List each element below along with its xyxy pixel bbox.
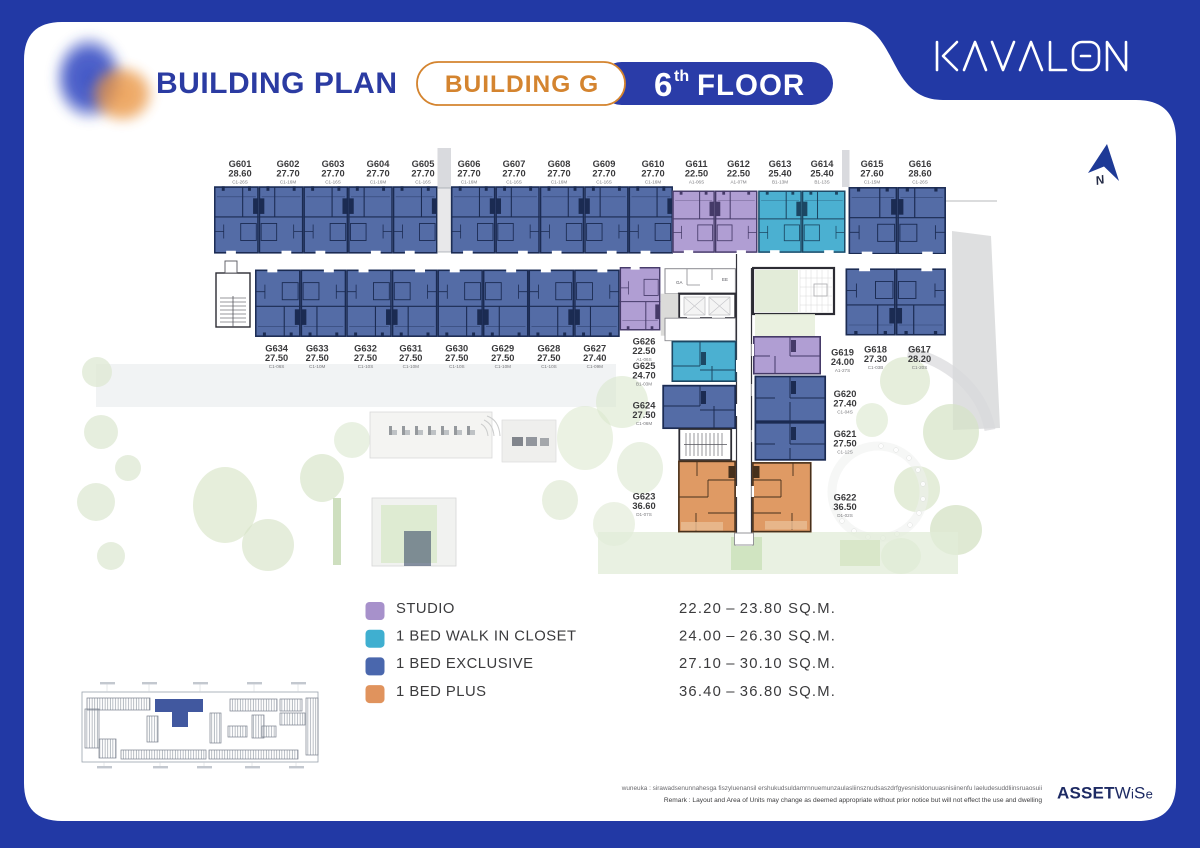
svg-text:1 BED PLUS: 1 BED PLUS [396, 684, 487, 700]
svg-text:27.70: 27.70 [457, 169, 480, 179]
svg-text:G617: G617 [908, 345, 931, 355]
svg-text:25.40: 25.40 [810, 169, 833, 179]
svg-text:C1-16S: C1-16S [506, 179, 522, 184]
svg-text:C1-03B: C1-03B [868, 365, 884, 370]
svg-text:ASSETWiSe: ASSETWiSe [1057, 784, 1153, 803]
svg-text:BUILDING G: BUILDING G [445, 71, 599, 98]
svg-text:22.50: 22.50 [685, 169, 708, 179]
svg-text:36.40 – 36.80 SQ.M.: 36.40 – 36.80 SQ.M. [679, 684, 836, 700]
svg-text:C1-10M: C1-10M [403, 364, 420, 369]
svg-text:C1-16S: C1-16S [325, 179, 341, 184]
svg-text:C1-10M: C1-10M [309, 364, 326, 369]
svg-text:27.70: 27.70 [276, 169, 299, 179]
svg-text:G609: G609 [593, 159, 616, 169]
svg-text:C1-10S: C1-10S [449, 364, 465, 369]
svg-text:28.60: 28.60 [908, 169, 931, 179]
svg-text:24.70: 24.70 [632, 371, 655, 381]
svg-text:C1-10S: C1-10S [358, 364, 374, 369]
svg-text:27.70: 27.70 [641, 169, 664, 179]
svg-text:G604: G604 [367, 159, 391, 169]
svg-text:27.50: 27.50 [491, 353, 514, 363]
svg-text:22.50: 22.50 [632, 346, 655, 356]
svg-text:24.00: 24.00 [831, 357, 854, 367]
svg-text:C1-16S: C1-16S [415, 179, 431, 184]
svg-text:G603: G603 [322, 159, 345, 169]
svg-text:27.40: 27.40 [833, 399, 856, 409]
svg-text:27.50: 27.50 [537, 353, 560, 363]
svg-text:C1-16M: C1-16M [551, 179, 568, 184]
svg-text:27.50: 27.50 [306, 353, 329, 363]
svg-text:G616: G616 [909, 159, 932, 169]
svg-text:D1-02S: D1-02S [837, 513, 853, 518]
svg-text:C1-12S: C1-12S [837, 449, 853, 454]
svg-text:1 BED EXCLUSIVE: 1 BED EXCLUSIVE [396, 656, 533, 672]
svg-text:36.60: 36.60 [632, 501, 655, 511]
svg-text:C1-15M: C1-15M [864, 179, 881, 184]
svg-text:G628: G628 [538, 344, 561, 354]
svg-text:G612: G612 [727, 159, 750, 169]
svg-text:C1-26S: C1-26S [912, 179, 928, 184]
svg-text:27.50: 27.50 [632, 410, 655, 420]
svg-text:G625: G625 [633, 361, 656, 371]
svg-text:1 BED WALK IN CLOSET: 1 BED WALK IN CLOSET [396, 629, 576, 645]
svg-text:G605: G605 [412, 159, 435, 169]
svg-text:G622: G622 [834, 493, 857, 503]
svg-text:G623: G623 [633, 492, 656, 502]
svg-text:C1-26S: C1-26S [232, 179, 248, 184]
svg-text:G615: G615 [861, 159, 884, 169]
svg-text:C1-04S: C1-04S [837, 409, 853, 414]
svg-text:B1-13S: B1-13S [814, 179, 829, 184]
svg-text:G613: G613 [769, 159, 792, 169]
svg-text:C1-16M: C1-16M [280, 179, 297, 184]
svg-text:27.50: 27.50 [833, 439, 856, 449]
svg-text:27.50: 27.50 [265, 353, 288, 363]
svg-text:G630: G630 [445, 344, 468, 354]
svg-text:B1-03M: B1-03M [636, 381, 652, 386]
svg-text:G606: G606 [458, 159, 481, 169]
svg-text:6: 6 [654, 66, 672, 103]
svg-text:27.50: 27.50 [399, 353, 422, 363]
svg-text:G627: G627 [583, 344, 606, 354]
svg-text:C1-10S: C1-10S [541, 364, 557, 369]
svg-text:27.70: 27.70 [502, 169, 525, 179]
svg-text:G611: G611 [685, 159, 707, 169]
svg-text:C1-06S: C1-06S [269, 364, 285, 369]
svg-text:G610: G610 [642, 159, 665, 169]
svg-text:GA: GA [676, 280, 683, 285]
svg-text:G618: G618 [864, 345, 887, 355]
svg-text:G631: G631 [399, 344, 422, 354]
svg-text:28.60: 28.60 [228, 169, 251, 179]
svg-text:Remark : Layout and Area of Un: Remark : Layout and Area of Units may ch… [664, 797, 1042, 804]
svg-text:EE: EE [722, 277, 728, 282]
svg-text:G634: G634 [265, 344, 289, 354]
svg-text:G607: G607 [503, 159, 526, 169]
svg-text:B1-13M: B1-13M [772, 179, 788, 184]
svg-text:C1-10M: C1-10M [495, 364, 512, 369]
svg-text:th: th [674, 68, 689, 85]
svg-text:27.50: 27.50 [354, 353, 377, 363]
svg-text:27.70: 27.70 [366, 169, 389, 179]
svg-text:27.10 – 30.10 SQ.M.: 27.10 – 30.10 SQ.M. [679, 656, 836, 672]
svg-text:C1-20S: C1-20S [912, 365, 928, 370]
svg-text:24.00 – 26.30 SQ.M.: 24.00 – 26.30 SQ.M. [679, 629, 836, 645]
svg-text:27.30: 27.30 [864, 354, 887, 364]
svg-text:G632: G632 [354, 344, 377, 354]
svg-text:27.50: 27.50 [445, 353, 468, 363]
svg-text:22.50: 22.50 [727, 169, 750, 179]
svg-text:A1-06S: A1-06S [689, 179, 704, 184]
svg-text:STUDIO: STUDIO [396, 601, 455, 617]
svg-text:27.70: 27.70 [411, 169, 434, 179]
svg-text:27.40: 27.40 [583, 353, 606, 363]
svg-text:G624: G624 [633, 401, 657, 411]
svg-text:27.60: 27.60 [860, 169, 883, 179]
svg-text:27.70: 27.70 [321, 169, 344, 179]
svg-text:25.40: 25.40 [768, 169, 791, 179]
svg-text:D1-07S: D1-07S [636, 512, 652, 517]
svg-text:G621: G621 [834, 429, 857, 439]
svg-text:A1-27S: A1-27S [835, 368, 850, 373]
svg-text:36.50: 36.50 [833, 502, 856, 512]
svg-text:BUILDING PLAN: BUILDING PLAN [156, 67, 398, 100]
svg-text:wuneuka : sirawadsenunnahesga: wuneuka : sirawadsenunnahesga fiszyluena… [621, 785, 1042, 792]
svg-text:A1-07M: A1-07M [730, 179, 746, 184]
svg-text:C1-09M: C1-09M [587, 364, 604, 369]
svg-text:C1-16M: C1-16M [461, 179, 478, 184]
svg-text:FLOOR: FLOOR [697, 69, 805, 102]
svg-text:28.20: 28.20 [908, 354, 931, 364]
svg-text:G620: G620 [834, 389, 857, 399]
svg-text:G602: G602 [277, 159, 300, 169]
svg-text:22.20 – 23.80 SQ.M.: 22.20 – 23.80 SQ.M. [679, 601, 836, 617]
svg-text:C1-16M: C1-16M [370, 179, 387, 184]
svg-text:G614: G614 [811, 159, 835, 169]
svg-text:G633: G633 [306, 344, 329, 354]
svg-text:27.70: 27.70 [592, 169, 615, 179]
svg-text:C1-16S: C1-16S [596, 179, 612, 184]
svg-text:C1-16M: C1-16M [645, 179, 662, 184]
svg-text:G619: G619 [831, 348, 854, 358]
svg-text:27.70: 27.70 [547, 169, 570, 179]
svg-text:G601: G601 [229, 159, 252, 169]
svg-text:G629: G629 [491, 344, 514, 354]
svg-text:G608: G608 [548, 159, 571, 169]
svg-text:G626: G626 [633, 337, 656, 347]
svg-text:C1-06M: C1-06M [636, 421, 653, 426]
